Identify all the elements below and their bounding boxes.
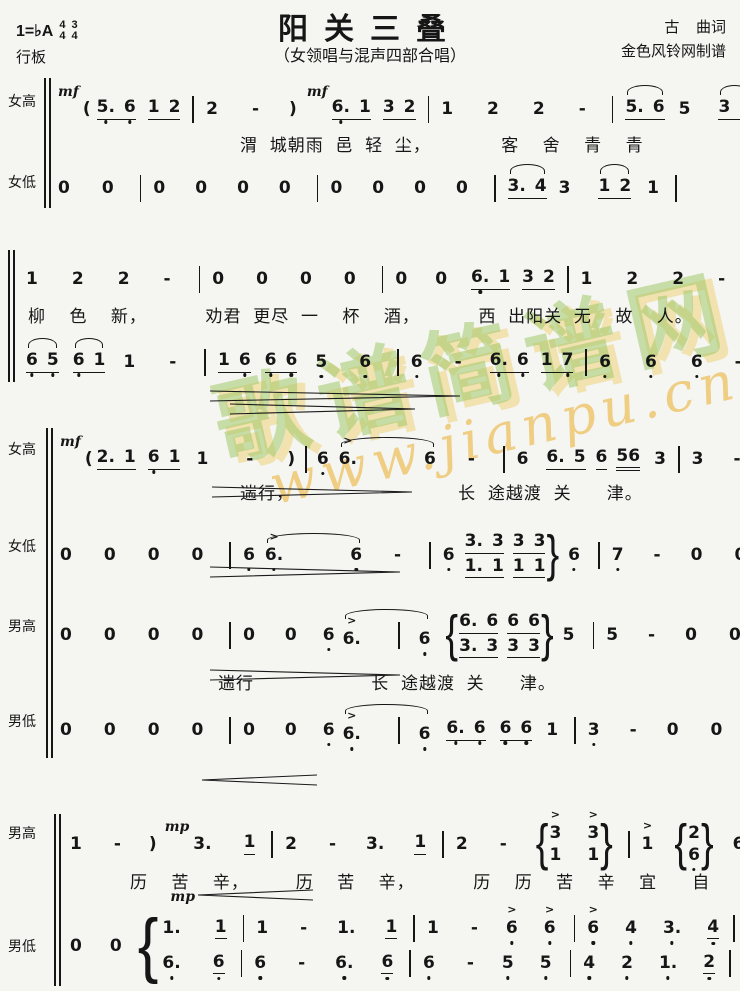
chord-stack: 3.3331.111}: [465, 532, 561, 578]
beam-group: 11: [513, 557, 546, 579]
note: 6: [500, 719, 512, 738]
rest-note: 0: [729, 626, 740, 645]
note: 1.: [659, 954, 677, 973]
rest-note: 0: [435, 270, 447, 289]
note: 5.: [625, 98, 643, 117]
note: 6: [653, 98, 665, 117]
beam-group: 32: [522, 268, 555, 290]
rest-note: 0: [344, 270, 356, 289]
note: -: [298, 954, 305, 973]
decrescendo-hairpin: [230, 403, 415, 415]
composer-credit: 古 曲词: [664, 16, 726, 37]
note: 2: [72, 270, 84, 289]
rest-note: 0: [104, 546, 116, 565]
note: 2: [672, 270, 684, 289]
barline: [598, 542, 600, 569]
barline: [241, 950, 243, 977]
barline: [503, 446, 505, 473]
voice-label: 女高: [8, 439, 36, 459]
rest-note: 0: [414, 179, 426, 198]
beam-group: 12: [148, 98, 181, 120]
slur-group: 5.6: [625, 98, 664, 120]
note: 5: [315, 353, 327, 372]
note: ): [287, 450, 295, 469]
voice-row: 男高00000066.6{6.6663.333}55-00: [0, 586, 740, 666]
note: 5: [679, 100, 691, 119]
note: 1.: [162, 919, 180, 938]
voice-row: 女高mf(5.6122-)mf6.132122-5.6535532: [0, 76, 740, 126]
note: 6.: [162, 954, 180, 973]
beam-group: 6.6: [459, 612, 498, 634]
note: 2: [533, 100, 545, 119]
barline: [413, 915, 415, 942]
lyrics-line: 柳 色 新， 劝君 更尽 一 杯 酒， 西 出阳关 无 故 人。: [0, 302, 693, 327]
note: 6.: [490, 351, 508, 370]
note: 2: [285, 835, 297, 854]
barline: [271, 831, 273, 858]
voice-row: 女低00000000003.43121: [0, 160, 740, 204]
stack-top-line: 3.333: [465, 532, 546, 554]
voice-row: 122-0000006.132122-: [0, 248, 740, 296]
slur-group: 65: [26, 351, 59, 373]
note: 1: [541, 351, 553, 370]
note: 3.: [663, 919, 681, 938]
note: 1: [441, 100, 453, 119]
voice-row: 女高mf(2.1611-)66.6-66.565633-(2.161: [0, 422, 740, 476]
beam-group: 16: [218, 351, 251, 373]
lyrics-row: 遄行， 长 途越渡 关 津。: [0, 476, 740, 506]
note: -: [169, 353, 176, 372]
lyrics-row: 柳 色 新， 劝君 更尽 一 杯 酒， 西 出阳关 无 故 人。: [0, 296, 740, 332]
voice-label: 男高: [8, 616, 36, 636]
note: 2: [543, 268, 555, 287]
rest-note: 0: [192, 626, 204, 645]
note: 2: [621, 954, 633, 973]
decrescendo-hairpin: [210, 390, 460, 402]
notation-line: 000066.6-63.3331.111}67-00: [60, 514, 740, 578]
left-brace: {: [445, 609, 458, 660]
note: 2.: [97, 448, 115, 467]
barline: [229, 622, 231, 649]
rest-note: 0: [372, 179, 384, 198]
note: -: [718, 270, 725, 289]
note: 6: [419, 630, 431, 649]
note: 6: [486, 612, 498, 631]
chord-stack: 31}: [587, 824, 614, 864]
notation-line: mf(5.6122-)mf6.132122-5.6535532: [58, 80, 740, 123]
note: 3: [549, 824, 561, 843]
rest-note: 0: [691, 546, 703, 565]
note: 1: [218, 351, 230, 370]
rest-note: 0: [148, 546, 160, 565]
note: 1: [123, 353, 135, 372]
lyrics-row: 历 苦 辛， 历 苦 辛， 历 历 苦 辛 宜 自: [0, 862, 740, 898]
rest-note: 0: [685, 626, 697, 645]
stack-top-line: 6.666: [459, 612, 540, 634]
voice-row: 男低00000066.66.66613-00: [0, 696, 740, 746]
note: 1: [385, 918, 397, 940]
note: 6.: [546, 448, 564, 467]
note: -: [246, 450, 253, 469]
rest-note: 0: [330, 179, 342, 198]
note: 5: [574, 448, 586, 467]
note: 6.: [339, 450, 357, 469]
rest-note: 0: [456, 179, 468, 198]
barline: [628, 831, 630, 858]
rest-note: 0: [285, 721, 297, 740]
beam-group: 61: [148, 448, 181, 470]
rest-note: 0: [192, 721, 204, 740]
note: ): [149, 835, 157, 854]
note: 4: [625, 919, 637, 938]
note: -: [468, 450, 475, 469]
note: 6: [520, 719, 532, 738]
slur-group: 3.4: [508, 177, 547, 199]
transcriber-credit: 金色风铃网制谱: [621, 40, 726, 61]
barline: [494, 175, 496, 202]
note: 7: [612, 546, 624, 565]
note: 6: [243, 546, 255, 565]
notation-line: 122-0000006.132122-: [26, 252, 740, 293]
dynamic-marking: mp: [165, 819, 190, 835]
barline: [204, 349, 206, 376]
beam-group: 32: [383, 98, 416, 120]
crescendo-hairpin: [202, 774, 317, 786]
note: 1: [498, 268, 510, 287]
voice-label: 男低: [8, 711, 36, 731]
note: 6.: [471, 268, 489, 287]
rest-note: 0: [104, 721, 116, 740]
note: 1: [26, 270, 38, 289]
rest-note: 0: [243, 626, 255, 645]
stack-bottom-line: 1.111: [465, 557, 546, 579]
slur-group: 6.6: [343, 622, 431, 649]
note: 3.: [465, 532, 483, 551]
note: 6: [323, 721, 335, 740]
divisi-lines: mp1.11-1.11-66643.46.66-6.66-55421.2: [162, 915, 734, 977]
system-3: 女高mf(2.1611-)66.6-66.565633-(2.161遄行， 长 …: [0, 422, 740, 746]
barline: [574, 915, 576, 942]
barline: [305, 446, 307, 473]
note: 3: [492, 532, 504, 551]
note: 3: [587, 824, 599, 843]
note: 3: [507, 637, 519, 656]
rest-note: 0: [237, 179, 249, 198]
lyrics-line: 渭 城朝雨 邑 轻 尘， 客 舍 青 青: [0, 131, 644, 156]
voice-label: 女低: [8, 536, 36, 556]
rest-note: 0: [58, 179, 70, 198]
note: -: [394, 546, 401, 565]
note: 6: [359, 353, 371, 372]
note: 5: [563, 626, 575, 645]
note: 6.: [343, 630, 361, 649]
notation-line: 00000066.66.66613-00: [60, 699, 740, 744]
note: 3: [522, 268, 534, 287]
lyrics-line: 遄行， 长 途越渡 关 津。: [0, 479, 643, 504]
stack-top-line: 3: [587, 824, 599, 843]
note: 6: [517, 351, 529, 370]
lyrics-line: 遄行 长 途越渡 关 津。: [0, 669, 556, 694]
note: -: [648, 626, 655, 645]
note: 6: [239, 351, 251, 370]
barline: [243, 915, 245, 942]
note: 6: [411, 353, 423, 372]
barline: [140, 175, 142, 202]
note: 6: [26, 351, 38, 370]
note: -: [471, 919, 478, 938]
notation-line: 1-)mp3.12-3.12-{3131}1{26}6.5: [70, 802, 740, 864]
note: 6: [528, 612, 540, 631]
note: (: [85, 450, 93, 469]
voice-row: 男低00{mp1.11-1.11-66643.46.66-6.66-55421.…: [0, 898, 740, 991]
beam-group: 6.6: [490, 351, 529, 373]
note: 1: [534, 557, 546, 576]
note: 3: [534, 532, 546, 551]
note: 3.: [366, 835, 384, 854]
beam-group: 6.6: [446, 719, 485, 741]
note: 6: [517, 450, 529, 469]
note: 1: [642, 835, 654, 854]
note: 6.: [332, 98, 350, 117]
note: 6.: [459, 612, 477, 631]
note: 1: [148, 98, 160, 117]
barline: [733, 915, 735, 942]
rest-note: 0: [153, 179, 165, 198]
divisi-bottom-line: 6.66-6.66-55421.2: [162, 950, 734, 977]
note: 1: [256, 919, 268, 938]
slur-group: 35: [718, 98, 740, 120]
voice-label: 女低: [8, 172, 36, 192]
voice-row: 65611-1666566-6.617666-: [0, 332, 740, 378]
notation-line: 00000066.6{6.6663.333}55-00: [60, 594, 740, 658]
note: 6: [317, 450, 329, 469]
note: 6: [124, 98, 136, 117]
note: 3: [486, 637, 498, 656]
note: 6: [265, 351, 277, 370]
system-2: 122-0000006.132122-柳 色 新， 劝君 更尽 一 杯 酒， 西…: [0, 248, 740, 378]
stack-top-line: 3: [549, 824, 561, 843]
beam-group: 33: [513, 532, 546, 554]
slur-group: 61: [73, 351, 106, 373]
note: 6: [506, 919, 518, 938]
voice-row: 男高1-)mp3.12-3.12-{3131}1{26}6.5: [0, 804, 740, 862]
rest-note: 0: [734, 546, 740, 565]
barline: [397, 349, 399, 376]
note: 3: [559, 179, 571, 198]
note: 6: [213, 953, 225, 975]
chord-stack: {6.6663.333}: [444, 612, 554, 658]
note: 6: [474, 719, 486, 738]
beam-group: 66: [507, 612, 540, 634]
note: 1: [647, 179, 659, 198]
stack-bottom-line: 3.333: [459, 637, 540, 659]
system-1: 女高mf(5.6122-)mf6.132122-5.6535532渭 城朝雨 邑…: [0, 76, 740, 204]
note: 2: [206, 100, 218, 119]
barline: [429, 542, 431, 569]
note: 1: [244, 833, 256, 855]
note: 6: [645, 353, 657, 372]
note: 2: [169, 98, 181, 117]
barline: [612, 96, 614, 123]
note: 6: [148, 448, 160, 467]
barline: [398, 717, 400, 744]
lyrics-line: 历 苦 辛， 历 苦 辛， 历 历 苦 辛 宜 自: [0, 868, 710, 893]
barline: [382, 266, 384, 293]
note: (: [83, 100, 91, 119]
note: 1: [70, 835, 82, 854]
note: 7: [562, 351, 574, 370]
sheet-music-page: 歌谱简谱网 www.jianpu.cn 1=♭A 4 4 3 4 行板 阳关三叠…: [0, 0, 740, 991]
note: 6: [286, 351, 298, 370]
rest-note: 0: [110, 937, 122, 956]
note: 1: [196, 450, 208, 469]
beam-group: 3.3: [459, 637, 498, 659]
note: 6.: [446, 719, 464, 738]
rest-note: 0: [300, 270, 312, 289]
note: 6: [381, 953, 393, 975]
notation-line: 00{mp1.11-1.11-66643.46.66-6.66-55421.2: [70, 915, 735, 977]
barline: [567, 266, 569, 293]
slur-group: 12: [598, 177, 631, 199]
note: 6: [423, 954, 435, 973]
note: 1: [581, 270, 593, 289]
rest-note: 0: [667, 721, 679, 740]
barline: [229, 542, 231, 569]
beam-group: 1.1: [465, 557, 504, 579]
note: 1: [414, 833, 426, 855]
rest-note: 0: [395, 270, 407, 289]
note: -: [467, 954, 474, 973]
barline: [317, 175, 319, 202]
note: 3.: [193, 835, 211, 854]
beam-group: 17: [541, 351, 574, 373]
note: 1: [427, 919, 439, 938]
note: 6: [544, 919, 556, 938]
barline: [428, 96, 430, 123]
barline: [574, 717, 576, 744]
chord-stack-lines: 6.6663.333: [459, 612, 540, 658]
note: 2: [118, 270, 130, 289]
voice-label: 女高: [8, 91, 36, 111]
voice-label: 男高: [8, 823, 36, 843]
stack-top-line: 2: [688, 824, 700, 843]
barline: [593, 622, 595, 649]
barline: [729, 950, 731, 977]
chord-stack: {31: [535, 824, 562, 864]
rest-note: 0: [60, 721, 72, 740]
note: 6: [599, 353, 611, 372]
beam-group: 6.1: [332, 98, 371, 120]
dynamic-marking: mf: [60, 434, 81, 450]
beam-group: 66: [500, 719, 533, 741]
note: 5: [606, 626, 618, 645]
rest-note: 0: [256, 270, 268, 289]
note: 1: [359, 98, 371, 117]
note: 1: [546, 721, 558, 740]
note: 2: [404, 98, 416, 117]
rest-note: 0: [104, 626, 116, 645]
note: -: [735, 353, 740, 372]
barline: [229, 717, 231, 744]
note: 5: [502, 954, 514, 973]
barline: [398, 622, 400, 649]
rest-note: 0: [148, 626, 160, 645]
chord-stack-lines: 31: [587, 824, 599, 864]
rest-note: 0: [60, 546, 72, 565]
note: 6: [691, 353, 703, 372]
right-brace: }: [541, 609, 554, 660]
note: 1.: [337, 919, 355, 938]
note: 6: [568, 546, 580, 565]
note: 2: [626, 270, 638, 289]
divisi-top-line: mp1.11-1.11-66643.4: [162, 915, 734, 942]
notation-line: 65611-1666566-6.617666-: [26, 335, 740, 376]
note: 6.: [265, 546, 283, 565]
note: 6: [323, 626, 335, 645]
note: 6.: [343, 725, 361, 744]
rest-note: 0: [70, 937, 82, 956]
lyrics-row: 遄行 长 途越渡 关 津。: [0, 666, 740, 696]
note: 4: [583, 954, 595, 973]
note: 5: [540, 954, 552, 973]
note: -: [630, 721, 637, 740]
notation-line: mf(2.1611-)66.6-66.565633-(2.161: [60, 426, 740, 473]
note: 5.: [97, 98, 115, 117]
note: -: [579, 100, 586, 119]
note: 3.: [508, 177, 526, 196]
note: 6: [419, 725, 431, 744]
rest-note: 0: [212, 270, 224, 289]
divisi-brace: {: [138, 910, 159, 981]
note: 6.: [733, 835, 740, 854]
slur-group: 6.6: [343, 717, 431, 744]
beam-group: 33: [507, 637, 540, 659]
lyrics-row: 渭 城朝雨 邑 轻 尘， 客 舍 青 青: [0, 126, 740, 160]
note: 6: [596, 448, 608, 470]
barline: [199, 266, 201, 293]
note: 3: [528, 637, 540, 656]
rest-note: 0: [279, 179, 291, 198]
note: 6: [443, 546, 455, 565]
dynamic-marking: mp: [170, 889, 195, 905]
system-4: 男高1-)mp3.12-3.12-{3131}1{26}6.5历 苦 辛， 历 …: [0, 804, 740, 991]
rest-note: 0: [285, 626, 297, 645]
voice-row: 女低000066.6-63.3331.111}67-00: [0, 506, 740, 586]
note: 6: [507, 612, 519, 631]
beam-group: 2.1: [97, 448, 136, 470]
slur-group: 6.6: [265, 546, 362, 565]
barline: [409, 950, 411, 977]
barline: [675, 175, 677, 202]
chord-stack-lines: 26: [688, 824, 700, 864]
note: 2: [456, 835, 468, 854]
note: 4: [707, 918, 719, 940]
voice-label: 男低: [8, 936, 36, 956]
chord-stack-lines: 3.3331.111: [465, 532, 546, 578]
note: 1: [492, 557, 504, 576]
note: 6.: [335, 954, 353, 973]
right-brace: }: [546, 529, 559, 580]
dynamic-marking: mf: [307, 84, 328, 100]
beam-group: 6.1: [471, 268, 510, 290]
rest-note: 0: [102, 179, 114, 198]
note: -: [654, 546, 661, 565]
note: -: [300, 919, 307, 938]
notation-line: 00000000003.43121: [58, 163, 677, 202]
note: -: [114, 835, 121, 854]
note: 1: [169, 448, 181, 467]
note: 5: [47, 351, 59, 370]
